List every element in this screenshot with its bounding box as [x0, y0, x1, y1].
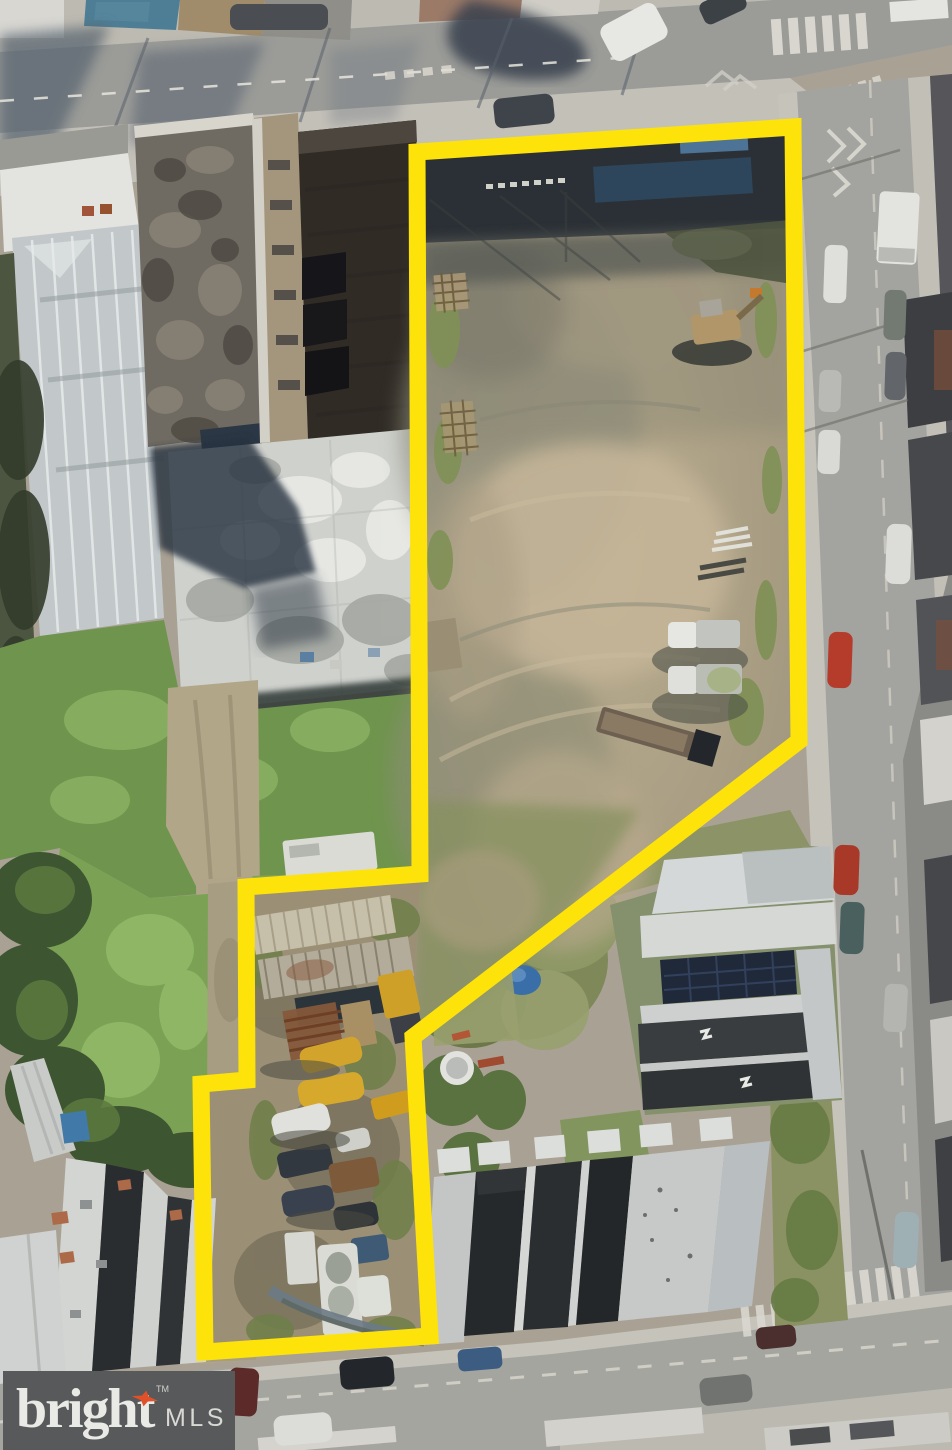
svg-text:MLS: MLS	[165, 1404, 227, 1432]
svg-text:bright: bright	[16, 1378, 156, 1440]
svg-text:TM: TM	[156, 1384, 169, 1394]
